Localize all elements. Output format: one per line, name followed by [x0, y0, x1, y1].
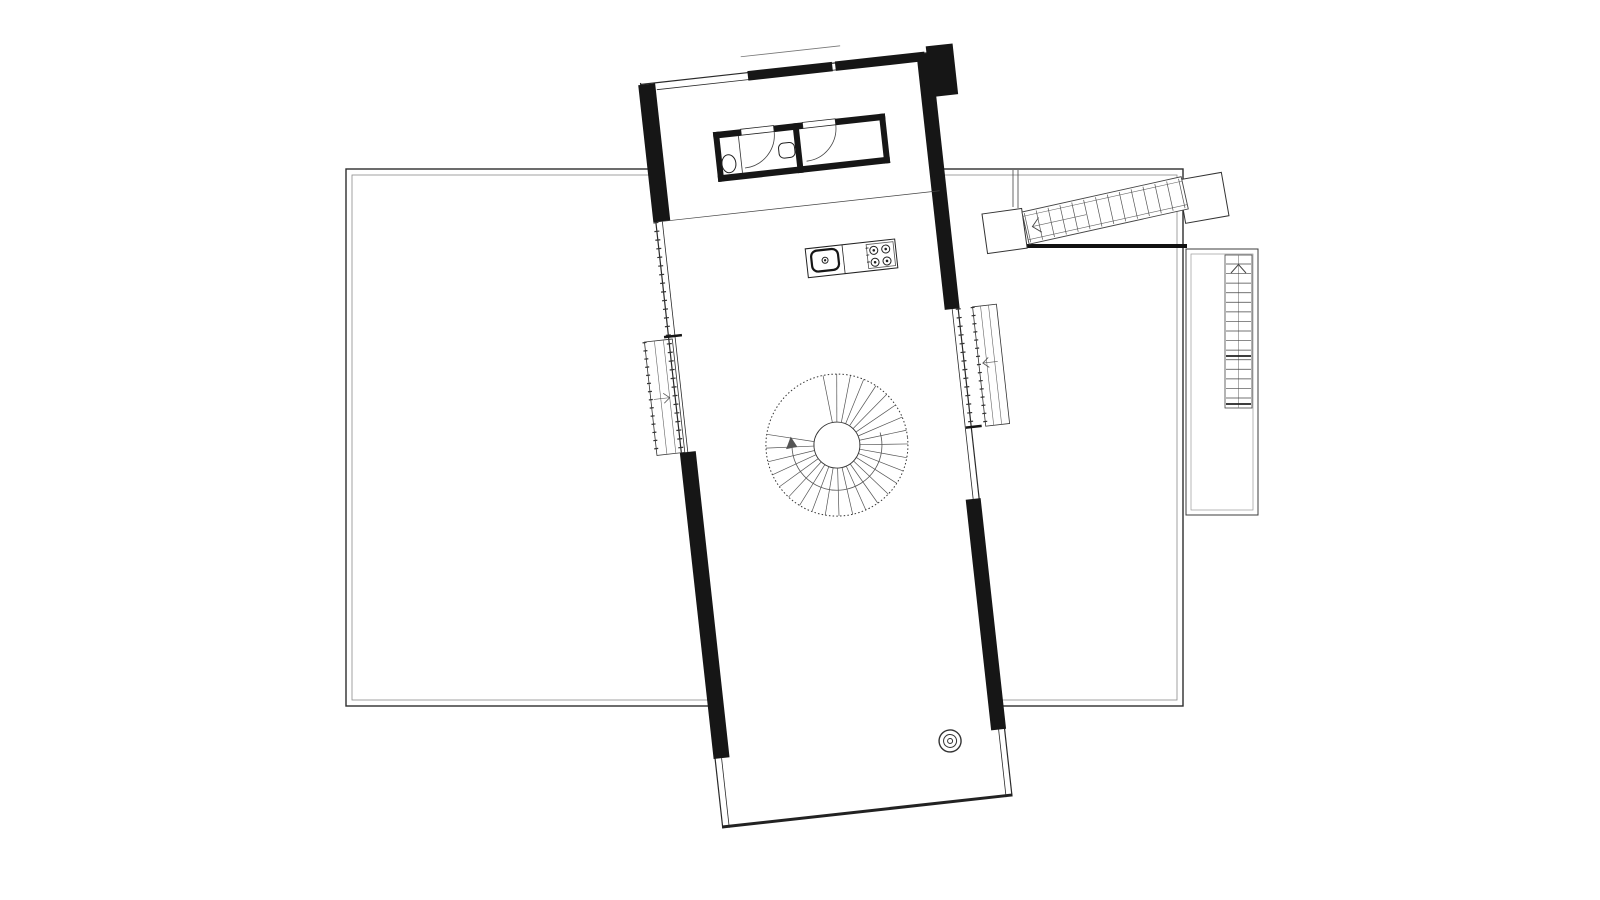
building	[614, 32, 1050, 831]
ladder-stair	[1225, 255, 1252, 408]
floor-plan-drawing	[0, 0, 1600, 900]
bridge-landing-left	[982, 208, 1027, 253]
wall-corner-block	[926, 43, 958, 97]
floor-plan-canvas	[0, 0, 1600, 900]
bridge-stair	[1022, 177, 1188, 244]
sliding-window-right	[973, 304, 1010, 426]
canopy-edge	[741, 46, 840, 57]
